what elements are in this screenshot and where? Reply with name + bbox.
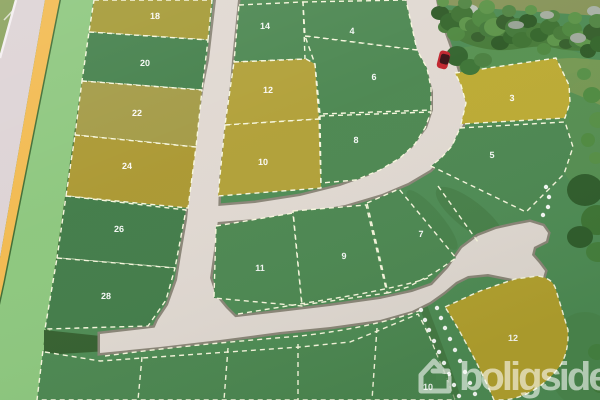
svg-text:boligsiden: boligsiden	[459, 355, 600, 399]
